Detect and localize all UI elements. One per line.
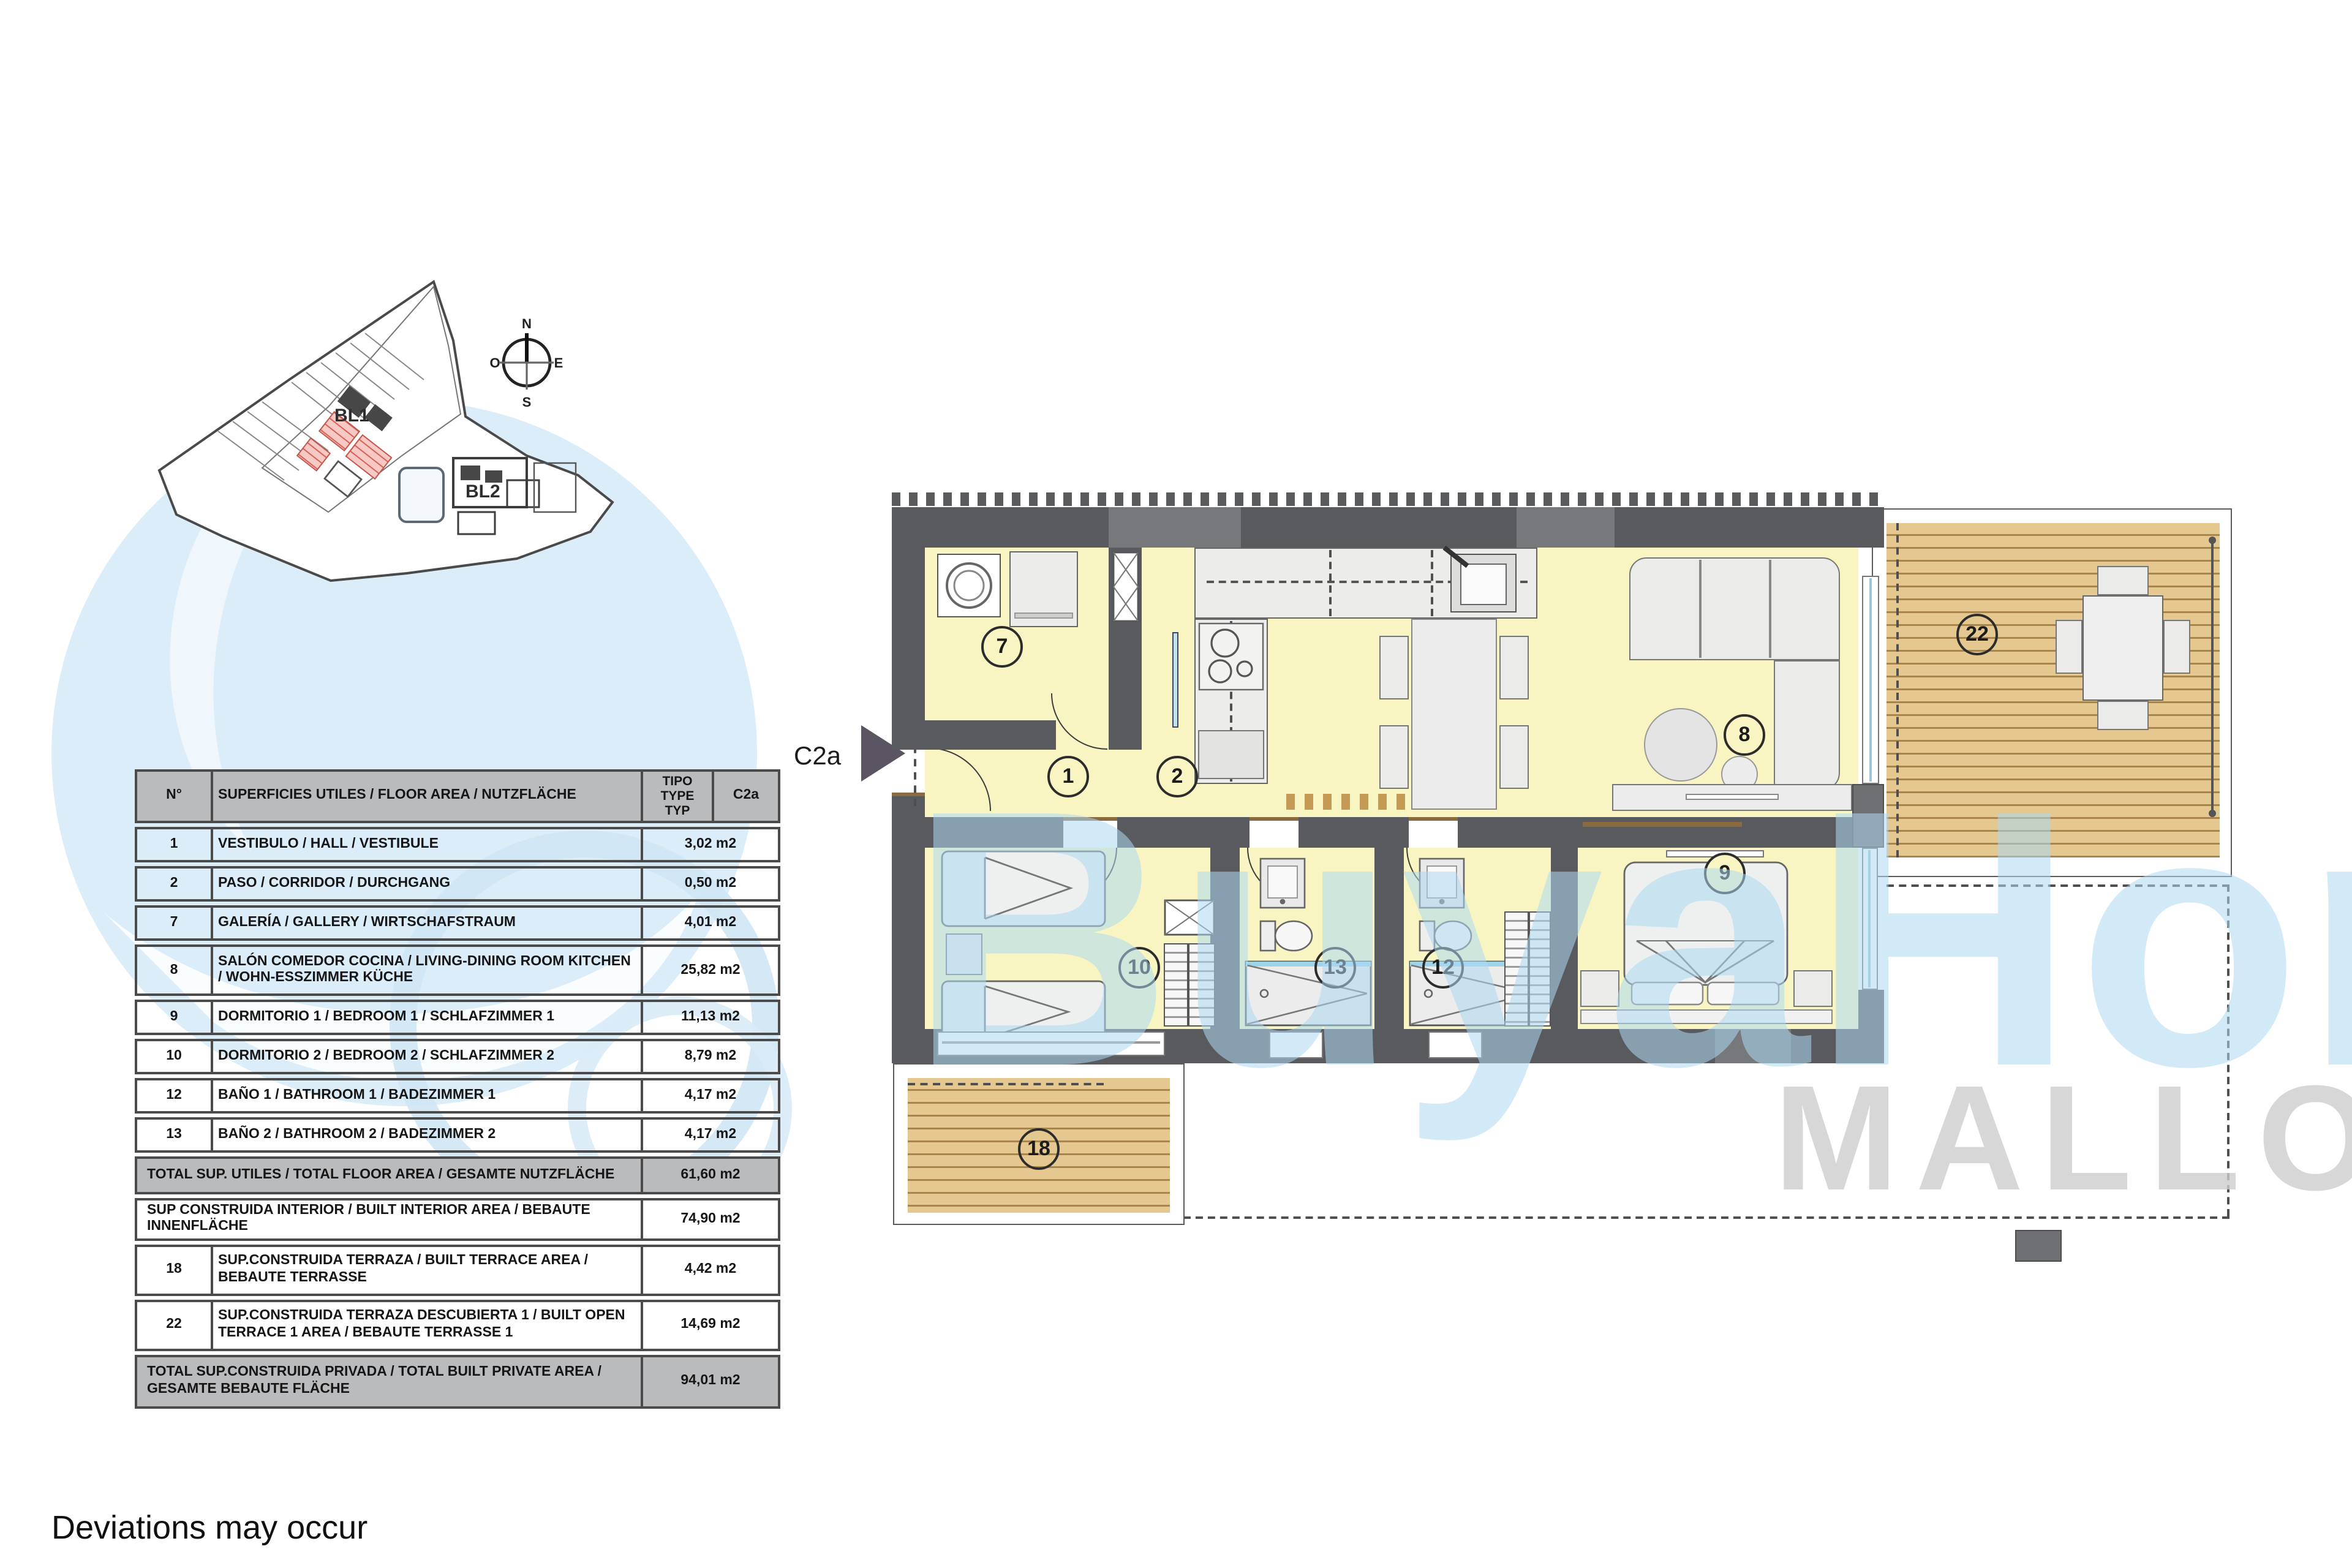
table-row: SUP CONSTRUIDA INTERIOR / BUILT INTERIOR… bbox=[135, 1198, 780, 1240]
sofa-main bbox=[1629, 557, 1840, 660]
row-value: 25,82 m2 bbox=[643, 947, 778, 993]
terrace22-deck bbox=[1887, 523, 2220, 858]
entrance-sill-bottom bbox=[892, 793, 925, 796]
row-value: 61,60 m2 bbox=[643, 1159, 778, 1192]
table-row: 9DORMITORIO 1 / BEDROOM 1 / SCHLAFZIMMER… bbox=[135, 1000, 780, 1035]
room-bubble-18: 18 bbox=[1018, 1128, 1060, 1170]
table-header-row: N°SUPERFICIES UTILES / FLOOR AREA / NUTZ… bbox=[135, 769, 780, 823]
outdoor-table bbox=[2082, 595, 2163, 701]
row-label: TOTAL SUP. UTILES / TOTAL FLOOR AREA / G… bbox=[137, 1159, 643, 1192]
terrace22-dimension-dot-top bbox=[2209, 537, 2216, 544]
room-bubble-8: 8 bbox=[1724, 714, 1765, 756]
row-number: 9 bbox=[137, 1002, 213, 1033]
bath13-door-sill bbox=[1249, 817, 1298, 821]
row-value: 4,42 m2 bbox=[643, 1246, 778, 1293]
room-bubble-7: 7 bbox=[981, 626, 1023, 668]
row-value: 11,13 m2 bbox=[643, 1002, 778, 1033]
row-label: PASO / CORRIDOR / DURCHGANG bbox=[213, 869, 643, 899]
kitchen-base-cabinet bbox=[1198, 730, 1264, 779]
bedroom10-window bbox=[937, 1031, 1165, 1056]
row-label: SALÓN COMEDOR COCINA / LIVING-DINING ROO… bbox=[213, 947, 643, 993]
wall-right-lower bbox=[1858, 990, 1884, 1063]
outdoor-chair-top bbox=[2097, 566, 2149, 595]
header-no: N° bbox=[137, 772, 213, 821]
bedroom10-door-sill bbox=[1063, 817, 1117, 821]
row-value: 8,79 m2 bbox=[643, 1041, 778, 1072]
wall-divider-3 bbox=[1298, 817, 1409, 848]
wall-top-lintel-1 bbox=[1109, 507, 1241, 548]
wall-galeria-bottom bbox=[892, 720, 1056, 750]
wardrobe-bed9 bbox=[1504, 911, 1551, 1027]
row-label: SUP.CONSTRUIDA TERRAZA DESCUBIERTA 1 / B… bbox=[213, 1302, 643, 1348]
row-value: 4,17 m2 bbox=[643, 1120, 778, 1150]
dining-chair-right-1 bbox=[1499, 636, 1529, 699]
table-row: 8SALÓN COMEDOR COCINA / LIVING-DINING RO… bbox=[135, 944, 780, 996]
table-row: 18SUP.CONSTRUIDA TERRAZA / BUILT TERRACE… bbox=[135, 1244, 780, 1295]
tall-cabinet-icon bbox=[1112, 551, 1139, 622]
row-value: 3,02 m2 bbox=[643, 829, 778, 860]
dining-table bbox=[1411, 619, 1497, 810]
dining-chair-left-1 bbox=[1379, 636, 1409, 699]
row-value: 4,17 m2 bbox=[643, 1080, 778, 1111]
galeria-counter-line bbox=[1014, 612, 1073, 619]
row-number: 2 bbox=[137, 869, 213, 899]
row-label: TOTAL SUP.CONSTRUIDA PRIVADA / TOTAL BUI… bbox=[137, 1357, 643, 1406]
row-value: 14,69 m2 bbox=[643, 1302, 778, 1348]
bath13-toilet-icon bbox=[1259, 916, 1316, 956]
terrace18-edge-dashed bbox=[908, 1083, 1104, 1085]
header-tipo: TIPO TYPE TYP bbox=[643, 772, 714, 821]
sideboard-handle bbox=[1686, 794, 1779, 800]
disclaimer-text: Deviations may occur bbox=[51, 1509, 367, 1547]
row-number: 22 bbox=[137, 1302, 213, 1348]
wall-top-lintel-2 bbox=[1517, 507, 1615, 548]
row-label: VESTIBULO / HALL / VESTIBULE bbox=[213, 829, 643, 860]
header-c2a: C2a bbox=[714, 772, 778, 821]
bed9-platform bbox=[1580, 1009, 1833, 1024]
header-label: SUPERFICIES UTILES / FLOOR AREA / NUTZFL… bbox=[213, 772, 643, 821]
bed9-nightstand-left bbox=[1580, 970, 1619, 1007]
row-label: DORMITORIO 2 / BEDROOM 2 / SCHLAFZIMMER … bbox=[213, 1041, 643, 1072]
area-table: N°SUPERFICIES UTILES / FLOOR AREA / NUTZ… bbox=[135, 769, 780, 1412]
table-row: 1VESTIBULO / HALL / VESTIBULE3,02 m2 bbox=[135, 827, 780, 862]
room-bubble-12: 12 bbox=[1422, 947, 1464, 989]
room-bubble-10: 10 bbox=[1118, 947, 1160, 989]
kitchen-counter-divider-2 bbox=[1431, 550, 1433, 616]
row-label: SUP CONSTRUIDA INTERIOR / BUILT INTERIOR… bbox=[137, 1200, 643, 1238]
table-row: TOTAL SUP.CONSTRUIDA PRIVADA / TOTAL BUI… bbox=[135, 1354, 780, 1408]
room-bubble-1: 1 bbox=[1047, 756, 1089, 797]
wall-left-upper bbox=[892, 507, 925, 747]
terrace22-dimension-dot-bottom bbox=[2209, 810, 2216, 817]
living-window-line bbox=[1869, 578, 1872, 782]
wall-bath13-bath12 bbox=[1374, 848, 1404, 1029]
table-row: 13BAÑO 2 / BATHROOM 2 / BADEZIMMER 24,17… bbox=[135, 1117, 780, 1153]
side-table-x-icon bbox=[1164, 899, 1215, 936]
bath13-sink-icon bbox=[1259, 858, 1306, 909]
bath12-door-sill bbox=[1409, 817, 1458, 821]
row-number: 18 bbox=[137, 1246, 213, 1293]
bath13-window bbox=[1269, 1031, 1323, 1058]
room-bubble-2: 2 bbox=[1156, 756, 1198, 797]
outdoor-chair-bottom bbox=[2097, 701, 2149, 730]
row-value: 0,50 m2 bbox=[643, 869, 778, 899]
row-number: 10 bbox=[137, 1041, 213, 1072]
outdoor-chair-left bbox=[2056, 620, 2082, 674]
bed-single-1 bbox=[941, 850, 1107, 929]
table-row: TOTAL SUP. UTILES / TOTAL FLOOR AREA / G… bbox=[135, 1156, 780, 1194]
bed9-nightstand-right bbox=[1793, 970, 1833, 1007]
wall-bottom-lintel bbox=[1715, 1029, 1791, 1063]
dining-chair-left-2 bbox=[1379, 725, 1409, 789]
room-bubble-9: 9 bbox=[1704, 853, 1746, 894]
plot-pillar bbox=[2015, 1230, 2062, 1262]
room-bubble-22: 22 bbox=[1956, 614, 1998, 655]
row-value: 4,01 m2 bbox=[643, 908, 778, 938]
row-label: GALERÍA / GALLERY / WIRTSCHAFSTRAUM bbox=[213, 908, 643, 938]
row-label: DORMITORIO 1 / BEDROOM 1 / SCHLAFZIMMER … bbox=[213, 1002, 643, 1033]
row-number: 1 bbox=[137, 829, 213, 860]
kitchen-glass-door bbox=[1172, 632, 1178, 728]
table-row: 2PASO / CORRIDOR / DURCHGANG0,50 m2 bbox=[135, 866, 780, 902]
row-value: 74,90 m2 bbox=[643, 1200, 778, 1238]
row-label: BAÑO 1 / BATHROOM 1 / BADEZIMMER 1 bbox=[213, 1080, 643, 1111]
insulation-hatch-top bbox=[892, 492, 1884, 506]
terrace22-edge-dashed bbox=[1896, 523, 1899, 858]
kitchen-counter-divider-1 bbox=[1329, 550, 1332, 616]
row-value: 94,01 m2 bbox=[643, 1357, 778, 1406]
bath12-window bbox=[1428, 1031, 1482, 1058]
dining-chair-right-2 bbox=[1499, 725, 1529, 789]
row-number: 7 bbox=[137, 908, 213, 938]
kitchen-faucet-icon bbox=[1441, 544, 1472, 571]
table-row: 22SUP.CONSTRUIDA TERRAZA DESCUBIERTA 1 /… bbox=[135, 1299, 780, 1351]
rug-round bbox=[1644, 708, 1717, 782]
plot-boundary-top-dashed bbox=[1887, 884, 2229, 887]
floorplan-sheet: BL1 BL2 N E S O bbox=[0, 0, 2352, 1568]
outdoor-chair-right bbox=[2163, 620, 2190, 674]
plot-boundary-right-dashed bbox=[2227, 884, 2229, 1216]
table-row: 10DORMITORIO 2 / BEDROOM 2 / SCHLAFZIMME… bbox=[135, 1039, 780, 1074]
bath12-sink-icon bbox=[1419, 858, 1465, 909]
washing-machine-drum-icon bbox=[937, 554, 1001, 617]
facade-pillar bbox=[1852, 784, 1884, 848]
row-label: SUP.CONSTRUIDA TERRAZA / BUILT TERRACE A… bbox=[213, 1246, 643, 1293]
sofa-seam-2 bbox=[1769, 560, 1771, 658]
bed10-nightstand bbox=[946, 933, 982, 975]
wall-top bbox=[892, 507, 1884, 548]
wall-divider-2 bbox=[1117, 817, 1249, 848]
stove-icon bbox=[1198, 622, 1264, 691]
bedroom10-window-line bbox=[942, 1041, 1160, 1044]
row-number: 13 bbox=[137, 1120, 213, 1150]
wall-bath12-bed9 bbox=[1551, 848, 1578, 1029]
unit-label: C2a bbox=[794, 742, 841, 772]
row-label: BAÑO 2 / BATHROOM 2 / BADEZIMMER 2 bbox=[213, 1120, 643, 1150]
bedroom9-slider-rail bbox=[1583, 822, 1742, 827]
row-number: 8 bbox=[137, 947, 213, 993]
wardrobe-bed10 bbox=[1164, 943, 1215, 1027]
plot-boundary-bottom-dashed bbox=[1183, 1216, 2229, 1219]
bedroom9-window-line bbox=[1868, 850, 1871, 987]
room-bubble-13: 13 bbox=[1314, 947, 1356, 989]
row-number: 12 bbox=[137, 1080, 213, 1111]
wall-divider bbox=[892, 817, 1063, 848]
table-row: 7GALERÍA / GALLERY / WIRTSCHAFSTRAUM4,01… bbox=[135, 905, 780, 941]
table-row: 12BAÑO 1 / BATHROOM 1 / BADEZIMMER 14,17… bbox=[135, 1078, 780, 1114]
sofa-seam-1 bbox=[1699, 560, 1701, 658]
sofa-chaise bbox=[1774, 660, 1840, 790]
terrace22-dimension-line bbox=[2211, 539, 2214, 815]
